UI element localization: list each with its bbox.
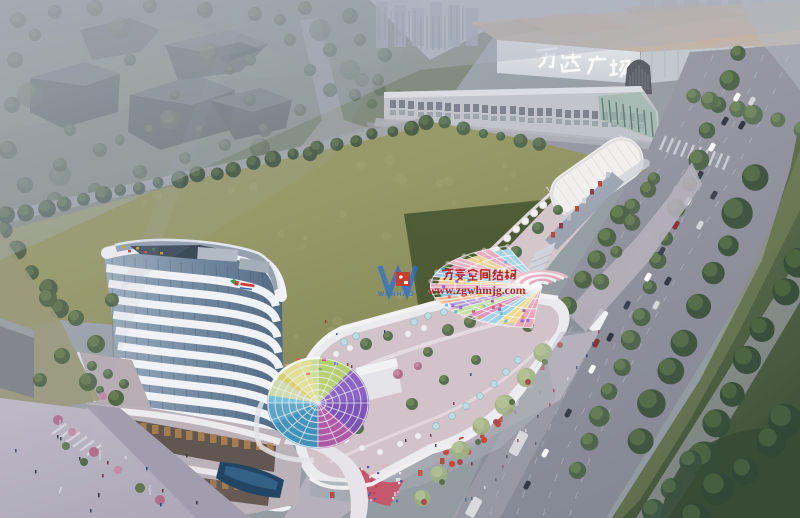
svg-text:WANHAO: WANHAO xyxy=(378,291,415,298)
svg-text:www.zgwhmjg.com: www.zgwhmjg.com xyxy=(428,283,526,297)
